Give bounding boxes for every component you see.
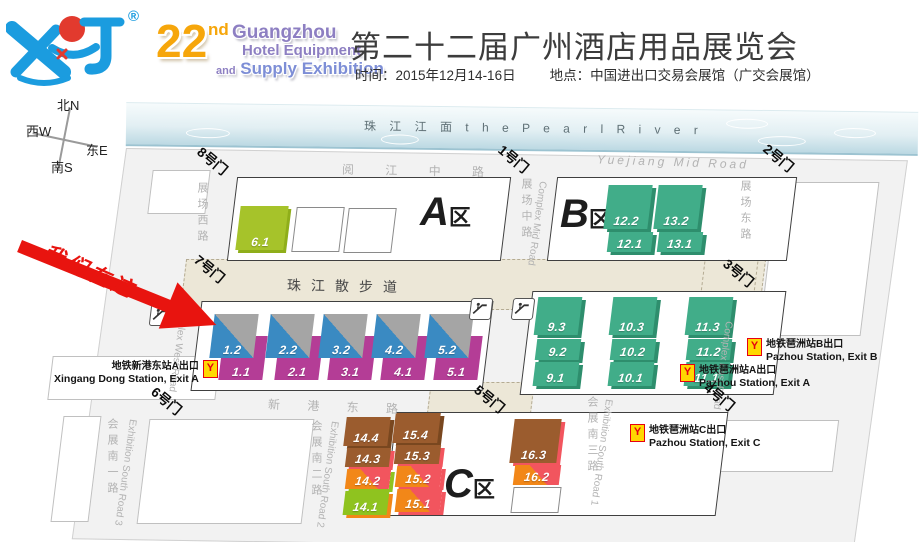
zone-c-label: C区 [444, 462, 495, 507]
hall-c-empty [510, 487, 561, 513]
hall-9-2: 9.2 [535, 339, 582, 360]
metro-logo-icon: Y [747, 338, 762, 356]
metro-label-cn: 地铁琶洲站A出口 [699, 364, 810, 377]
hall-16-3: 16.3 [509, 419, 561, 463]
hall-12-1: 12.1 [607, 232, 653, 252]
hall-13-1: 13.1 [657, 232, 703, 252]
pearl-river-band: 珠 江 江 面 t h e P e a r l R i v e r [126, 102, 918, 156]
metro-label-cn: 地铁琶洲站C出口 [649, 424, 760, 437]
edition-lockup: 22 nd Guangzhou Hotel Equipment and Supp… [156, 12, 356, 88]
metro-logo-icon: Y [630, 424, 645, 442]
metro-label-cn: 地铁琶洲站B出口 [766, 338, 877, 351]
edition-subject: Hotel Equipment [242, 42, 361, 59]
hall-14-3: 14.3 [345, 448, 391, 467]
hall-2-2: 2.2 [265, 314, 314, 358]
hall-4-2: 4.2 [371, 314, 420, 358]
metro-label-en: Pazhou Station, Exit B [766, 351, 877, 365]
hall-9-3: 9.3 [534, 297, 583, 335]
hall-a-empty-1 [291, 207, 345, 252]
hall-12-2: 12.2 [603, 185, 652, 229]
metro-exit-pazhou-b: Y 地铁琶洲站B出口 Pazhou Station, Exit B [747, 338, 877, 365]
escalator-icon [469, 298, 494, 320]
hall-10-2: 10.2 [610, 339, 657, 360]
metro-label-en: Pazhou Station, Exit C [649, 437, 760, 451]
exhibition-map-page: ® 22 nd Guangzhou Hotel Equipment and Su… [0, 0, 920, 542]
hall-9-1: 9.1 [533, 362, 580, 386]
registered-mark: ® [128, 8, 139, 25]
hall-6-1: 6.1 [235, 206, 288, 250]
promenade-label: 珠江散步道 [287, 275, 407, 297]
compass-north: 北N [57, 95, 79, 114]
hall-5-2: 5.2 [424, 314, 473, 358]
hall-15-4: 15.4 [392, 413, 441, 443]
hall-15-1: 15.1 [395, 489, 443, 512]
ripple-icon [758, 136, 806, 147]
hall-3-2: 3.2 [318, 314, 367, 358]
ripple-icon [726, 118, 768, 129]
escalator-icon [511, 298, 536, 320]
hall-10-3: 10.3 [609, 297, 658, 335]
hall-14-2: 14.2 [345, 469, 391, 489]
ripple-icon [186, 128, 230, 139]
edition-city: Guangzhou [232, 22, 336, 44]
zone-a-label: A区 [420, 190, 471, 235]
event-info: 时间：2015年12月14-16日地点：中国进出口交易会展馆（广交会展馆） [355, 64, 854, 84]
ripple-icon [834, 128, 876, 139]
hall-16-2: 16.2 [513, 465, 561, 485]
yuejiang-road-label-cn: 阅 江 中 路 [342, 161, 498, 181]
metro-label-en: Pazhou Station, Exit A [699, 377, 810, 391]
hall-a-empty-2 [343, 208, 397, 253]
compass-west: 西W [26, 121, 51, 140]
metro-label-en: Xingang Dong Station, Exit A [54, 373, 199, 387]
hall-10-1: 10.1 [608, 362, 655, 386]
compass-south: 南S [51, 157, 73, 176]
complex-west-road-label-cn: 展场西路 [194, 182, 210, 257]
hall-15-2: 15.2 [395, 466, 443, 487]
zone-b-label: B区 [560, 192, 611, 237]
complex-east-road-label-cn: 展场东路 [737, 180, 753, 252]
metro-exit-pazhou-a: Y 地铁琶洲站A出口 Pazhou Station, Exit A [680, 364, 810, 391]
event-place: 地点：中国进出口交易会展馆（广交会展馆） [550, 68, 820, 83]
hall-14-4: 14.4 [343, 417, 391, 446]
edition-ordinal: nd [208, 20, 229, 40]
hall-13-2: 13.2 [653, 185, 702, 229]
building-southwest-2 [137, 419, 315, 524]
metro-logo-icon: Y [680, 364, 695, 382]
ripple-icon [381, 134, 419, 144]
hall-15-3: 15.3 [394, 445, 441, 464]
compass-east: 东E [86, 140, 108, 159]
event-time: 时间：2015年12月14-16日 [355, 68, 516, 83]
metro-exit-pazhou-c: Y 地铁琶洲站C出口 Pazhou Station, Exit C [630, 424, 760, 451]
edition-number: 22 [156, 14, 207, 68]
hall-14-1: 14.1 [343, 491, 390, 515]
page-title: 第二十二届广州酒店用品展览会 [350, 22, 798, 67]
pearl-river-label: 珠 江 江 面 t h e P e a r l R i v e r [364, 117, 703, 138]
